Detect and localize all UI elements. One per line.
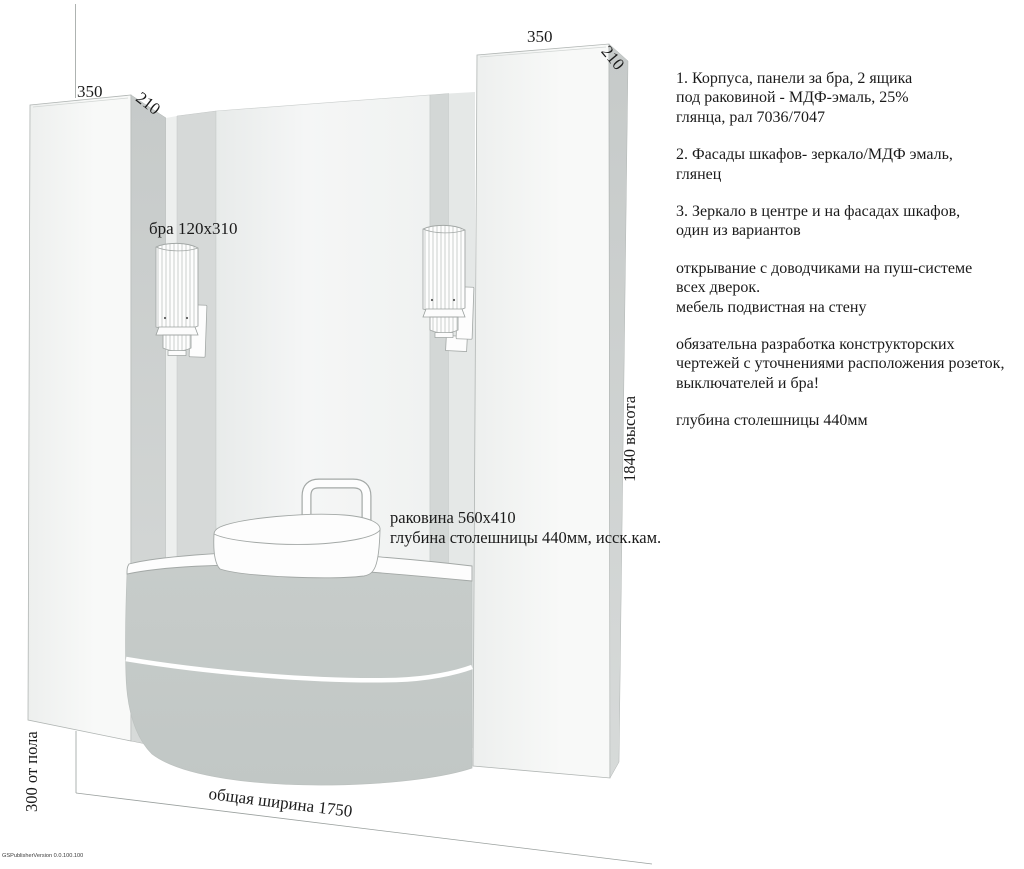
dim-right-cabinet-width: 350: [527, 27, 553, 47]
vanity-body: [126, 565, 472, 785]
note-facades: 2. Фасады шкафов- зеркало/МДФ эмаль, гля…: [676, 145, 1024, 184]
note-opening: открывание с доводчиками на пуш-системе …: [676, 259, 1024, 317]
sconce-label: бра 120x310: [149, 219, 237, 239]
sconce-screw: [186, 317, 188, 319]
note-mirror: 3. Зеркало в центре и на фасадах шкафов,…: [676, 202, 1024, 241]
sconce-flange: [156, 327, 198, 335]
sconce-cylinder: [156, 243, 198, 330]
sconce-screw: [164, 317, 166, 319]
note-materials: 1. Корпуса, панели за бра, 2 ящика под р…: [676, 69, 1024, 127]
note-drawings: обязательна разработка конструкторских ч…: [676, 335, 1024, 393]
dim-left-cabinet-width: 350: [77, 82, 103, 102]
floor-line: [76, 793, 652, 864]
dim-total-height: 1840 высота: [621, 396, 640, 482]
sink-label: раковина 560x410 глубина столешницы 440м…: [390, 508, 661, 548]
sconce-base: [168, 351, 186, 356]
right-cabinet-front: [473, 44, 610, 778]
drawing-sheet: 350 210 350 210 1840 высота 300 от пола …: [0, 0, 1024, 869]
dim-floor-offset: 300 от пола: [23, 731, 42, 812]
specification-notes: 1. Корпуса, панели за бра, 2 ящика под р…: [676, 69, 1024, 449]
sconce-drum: [163, 335, 191, 351]
note-counter-depth: глубина столешницы 440мм: [676, 411, 1024, 430]
sink-basin: [214, 514, 380, 578]
left-cabinet-front: [28, 95, 131, 741]
app-version-stamp: GSPublisherVersion 0.0.100.100: [2, 853, 83, 859]
